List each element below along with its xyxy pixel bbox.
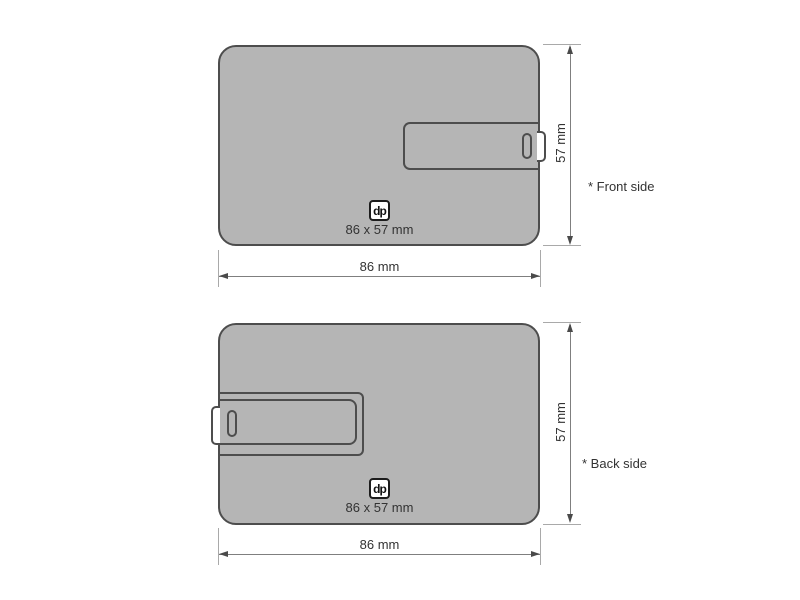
- front-ext-line-bottom: [543, 245, 581, 246]
- back-height-dim-line: [570, 325, 571, 517]
- spec-sheet: dp 86 x 57 mm 57 mm * Front side 86 mm d…: [0, 0, 800, 600]
- front-usb-connector-panel: [403, 122, 538, 170]
- front-usb-plug-tab: [537, 131, 546, 162]
- back-arrow-left-icon: [219, 551, 228, 557]
- back-side-label: * Back side: [582, 456, 647, 471]
- back-ext-line-left: [218, 528, 219, 565]
- back-usb-plug-tab: [211, 406, 220, 445]
- front-ext-line-top: [543, 44, 581, 45]
- front-side-label: * Front side: [588, 179, 654, 194]
- back-ext-line-right: [540, 528, 541, 565]
- front-arrow-right-icon: [531, 273, 540, 279]
- front-size-caption: 86 x 57 mm: [309, 222, 450, 237]
- front-height-dim-line: [570, 47, 571, 239]
- front-arrow-down-icon: [567, 236, 573, 245]
- back-usb-slot-hole: [227, 410, 237, 437]
- back-usb-connector-panel: [220, 399, 357, 445]
- front-usb-slot-hole: [522, 133, 532, 159]
- back-height-label: 57 mm: [553, 381, 569, 463]
- dp-logo-text: dp: [373, 204, 386, 218]
- back-ext-line-bottom: [543, 524, 581, 525]
- front-width-dim-line: [219, 276, 540, 277]
- front-arrow-left-icon: [219, 273, 228, 279]
- back-arrow-up-icon: [567, 323, 573, 332]
- front-arrow-up-icon: [567, 45, 573, 54]
- back-width-dim-line: [219, 554, 540, 555]
- front-ext-line-left: [218, 250, 219, 287]
- front-ext-line-right: [540, 250, 541, 287]
- dp-logo-text: dp: [373, 482, 386, 496]
- back-ext-line-top: [543, 322, 581, 323]
- dp-logo: dp: [369, 478, 390, 499]
- dp-logo: dp: [369, 200, 390, 221]
- back-arrow-down-icon: [567, 514, 573, 523]
- back-width-label: 86 mm: [309, 537, 450, 552]
- back-arrow-right-icon: [531, 551, 540, 557]
- front-height-label: 57 mm: [553, 102, 569, 184]
- back-size-caption: 86 x 57 mm: [309, 500, 450, 515]
- front-width-label: 86 mm: [309, 259, 450, 274]
